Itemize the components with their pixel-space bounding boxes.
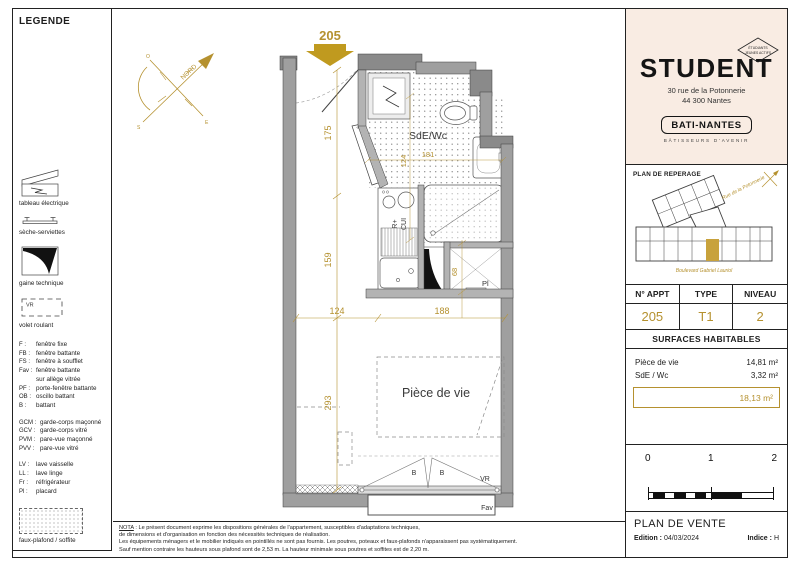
surface-total: 18,13 m² (633, 387, 780, 408)
surfaces-title: SURFACES HABITABLES (626, 330, 787, 349)
faux-plafond-label: faux-plafond / soffite (19, 537, 105, 544)
hotplate-large (398, 192, 414, 208)
brand-block: ÉTUDIANTS JEUNES ACTIFS STUDENT 30 rue d… (626, 9, 787, 165)
value-type: T1 (680, 304, 734, 329)
window-b-right-label: B (440, 470, 445, 477)
value-niveau: 2 (733, 304, 787, 329)
abbr-label: lave linge (36, 470, 63, 479)
edition-value: 04/03/2024 (664, 535, 699, 542)
legend-abbreviations-equipment: LV :lave vaisselle LL :lave linge Fr :ré… (19, 461, 105, 496)
legend-panel: LEGENDE tableau électrique sèche-serviet… (13, 9, 112, 551)
value-appt: 205 (626, 304, 680, 329)
brand-address: 30 rue de la Potonnerie 44 300 Nantes (626, 86, 787, 105)
nota-line-2: de dimensions et d'organisation en fonct… (119, 532, 619, 539)
badge-line2: JEUNES ACTIFS (745, 51, 772, 55)
location-plan: PLAN DE REPERAGE (626, 165, 787, 285)
indice: Indice : H (747, 535, 779, 542)
surfaces-block: SURFACES HABITABLES Pièce de vie 14,81 m… (626, 330, 787, 445)
gaine-technique (422, 247, 444, 292)
nota-line-3: Les équipements ménagers et le mobilier … (119, 539, 619, 546)
abbr: PVM : (19, 436, 40, 445)
abbr: GCV : (19, 427, 40, 436)
abbr-label: fenêtre fixe (36, 341, 67, 350)
compass-o: O (146, 54, 150, 60)
compass-rose: NORD O E S (137, 53, 214, 131)
abbr-label: fenêtre à soufflet (36, 358, 83, 367)
abbr-label: réfrigérateur (36, 479, 70, 488)
abbr-label: oscillo battant (36, 393, 75, 402)
scale-2: 2 (771, 453, 777, 464)
abbr: B : (19, 402, 36, 411)
room-label-bathroom: SdE/Wc (409, 130, 447, 142)
legend-label: gaine technique (19, 280, 105, 287)
dim-175: 175 (323, 125, 333, 140)
surfaces-rows: Pièce de vie 14,81 m² SdE / Wc 3,32 m² (626, 349, 787, 382)
indice-value: H (774, 535, 779, 542)
faux-plafond-icon (19, 508, 83, 534)
edition: Edition : 04/03/2024 (634, 535, 699, 542)
tableau-electrique (368, 73, 410, 119)
scale-bar: 0 1 2 (648, 453, 774, 503)
title-block: PLAN DE VENTE Edition : 04/03/2024 Indic… (626, 512, 787, 556)
nota-line-1: NOTA : Le présent document exprime les d… (119, 525, 619, 532)
abbr: Pl : (19, 488, 36, 497)
surface-label: Pièce de vie (635, 356, 679, 369)
apartment-info-table: N° APPT TYPE NIVEAU 205 T1 2 (626, 285, 787, 330)
edition-row: Edition : 04/03/2024 Indice : H (634, 535, 779, 542)
document-title: PLAN DE VENTE (634, 518, 779, 530)
abbr: F : (19, 341, 36, 350)
compass-e: E (205, 120, 209, 126)
abbr: PF : (19, 385, 36, 394)
window-b-left-label: B (412, 470, 417, 477)
builder-logo: BATI-NANTES (661, 116, 751, 134)
room-label-living: Pièce de vie (402, 386, 470, 400)
legend-title: LEGENDE (19, 16, 105, 27)
vr-tag: VR (26, 303, 34, 309)
surface-row: Pièce de vie 14,81 m² (635, 356, 778, 369)
address-line1: 30 rue de la Potonnerie (626, 86, 787, 96)
abbr-label: lave vaisselle (36, 461, 73, 470)
seche-serviettes-icon (19, 216, 61, 226)
abbr-label: placard (36, 488, 57, 497)
tableau-electrique-icon (19, 167, 61, 197)
nota-text: : Le présent document exprime les dispos… (134, 525, 420, 531)
dim-68: 68 (450, 268, 459, 276)
dim-159: 159 (323, 252, 333, 267)
abbr: OB : (19, 393, 36, 402)
entry-arrow-icon (306, 44, 354, 66)
abbr-label: fenêtre battante (36, 350, 80, 359)
surface-value: 14,81 m² (746, 356, 778, 369)
hotplate-small (383, 196, 395, 208)
brand-badge-icon: ÉTUDIANTS JEUNES ACTIFS (737, 37, 779, 63)
abbr-label: garde-corps maçonné (40, 419, 101, 428)
shower (424, 185, 504, 242)
legend-abbreviations-gardecorps: GCM :garde-corps maçonné GCV :garde-corp… (19, 419, 105, 454)
builder-tagline: BÂTISSEURS D'AVENIR (626, 138, 787, 143)
fav-label: Fav (481, 505, 493, 512)
col-header-appt: N° APPT (626, 285, 680, 304)
nota-block: NOTA : Le présent document exprime les d… (113, 521, 625, 557)
soffite-hatch (296, 485, 358, 494)
nota-prefix: NOTA (119, 525, 134, 531)
abbr-label: porte-fenêtre battante (36, 385, 97, 394)
legend-item-volet-roulant: VR volet roulant (19, 296, 105, 329)
kitchen-label-r: R+ (392, 219, 399, 228)
legend-abbreviations-windows: F :fenêtre fixe FB :fenêtre battante FS … (19, 341, 105, 411)
volet-roulant-label: VR (480, 476, 490, 483)
badge-line1: ÉTUDIANTS (748, 45, 768, 50)
abbr: LV : (19, 461, 36, 470)
legend-item-seche-serviettes: sèche-serviettes (19, 216, 105, 236)
placard-label: Pl (482, 279, 489, 288)
abbr: GCM : (19, 419, 40, 428)
abbr: LL : (19, 470, 36, 479)
entry-door (296, 70, 358, 112)
col-header-niveau: NIVEAU (733, 285, 787, 304)
abbr: Fr : (19, 479, 36, 488)
abbr: FS : (19, 358, 36, 367)
legend-label: volet roulant (19, 322, 105, 329)
drainer (381, 228, 417, 256)
dim-188: 188 (434, 306, 449, 316)
edition-label: Edition : (634, 535, 662, 542)
address-line2: 44 300 Nantes (626, 96, 787, 106)
nota-line-4: Sauf mention contraire les hauteurs sous… (119, 547, 619, 554)
kitchen-sink (380, 258, 420, 288)
location-map: Rue de la Potonnerie Boulevard Gabriel L… (626, 165, 787, 284)
scale-1: 1 (708, 453, 714, 464)
north-label: NORD (180, 63, 199, 81)
dim-124-bath: 124 (399, 155, 408, 168)
abbr-label: pare-vue vitré (40, 445, 79, 454)
abbr-label: garde-corps vitré (40, 427, 87, 436)
indice-label: Indice : (747, 535, 772, 542)
street-bottom-label: Boulevard Gabriel Lauriol (676, 268, 733, 274)
abbr: FB : (19, 350, 36, 359)
dim-293: 293 (323, 395, 333, 410)
abbr: Fav : (19, 367, 36, 384)
legend-label: sèche-serviettes (19, 229, 105, 236)
scale-0: 0 (645, 453, 651, 464)
abbr-label: pare-vue maçonné (40, 436, 93, 445)
legend-item-tableau-electrique: tableau électrique (19, 167, 105, 207)
abbr-label: fenêtre battante sur allège vitrée (36, 367, 80, 384)
balcony (368, 495, 495, 515)
gaine-technique-icon (19, 245, 61, 277)
compass-s: S (137, 125, 141, 131)
legend-label: tableau électrique (19, 200, 105, 207)
abbr-label: battant (36, 402, 55, 411)
surface-value: 3,32 m² (751, 369, 778, 382)
scale-bar-ruler (648, 492, 774, 499)
surface-label: SdE / Wc (635, 369, 668, 382)
unit-number: 205 (319, 28, 341, 43)
volet-roulant-icon: VR (19, 296, 65, 319)
dim-124: 124 (329, 306, 344, 316)
floor-plan: NORD O E S R+ CUI Pl (113, 9, 625, 521)
col-header-type: TYPE (680, 285, 734, 304)
legend-item-gaine-technique: gaine technique (19, 245, 105, 287)
street-top-label: Rue de la Potonnerie (721, 175, 766, 202)
scale-bar-block: 0 1 2 (626, 445, 787, 512)
location-plan-title: PLAN DE REPERAGE (633, 171, 701, 178)
right-panel: ÉTUDIANTS JEUNES ACTIFS STUDENT 30 rue d… (625, 9, 787, 557)
surface-row: SdE / Wc 3,32 m² (635, 369, 778, 382)
highlighted-unit (706, 239, 719, 261)
abbr: PVV : (19, 445, 40, 454)
dim-181: 181 (422, 150, 435, 159)
kitchenette: R+ CUI (378, 188, 420, 290)
